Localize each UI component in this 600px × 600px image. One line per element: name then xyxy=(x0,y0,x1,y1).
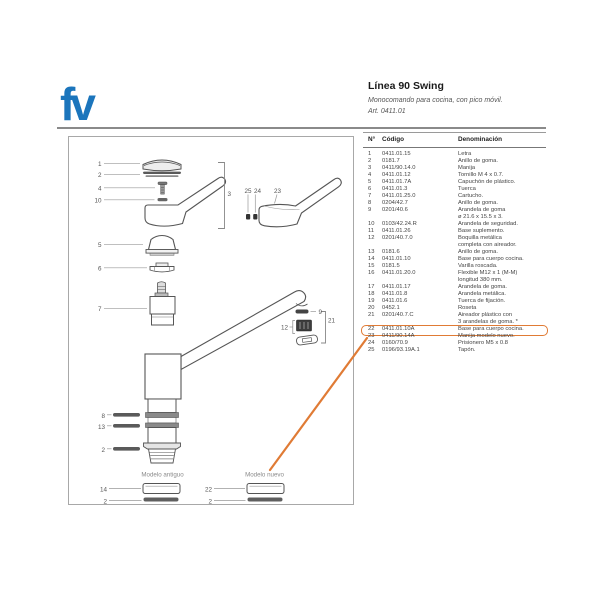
row-code: 0103/42.24.R xyxy=(382,221,458,228)
row-name: Tapón. xyxy=(458,347,546,354)
row-code: 0201/40.7.C xyxy=(382,312,458,326)
row-name: Prisionero M5 x 0.8 xyxy=(458,340,546,347)
row-name: Varilla roscada. xyxy=(458,263,546,270)
callout-7: 7 xyxy=(98,306,102,313)
table-row: 170411.01.17Arandela de goma. xyxy=(368,284,546,291)
part-base-old xyxy=(143,484,180,502)
part-aerator-body xyxy=(297,320,312,331)
row-number: 23 xyxy=(368,333,382,340)
row-code: 0452.1 xyxy=(382,305,458,312)
row-code: 0411.01.7A xyxy=(382,179,458,186)
page-subtitle: Monocomando para cocina, con pico móvil. xyxy=(368,97,503,104)
row-number: 22 xyxy=(368,326,382,333)
table-row: 140411.01.10Base para cuerpo cocina. xyxy=(368,256,546,263)
callout-5: 5 xyxy=(98,242,102,249)
row-number: 25 xyxy=(368,347,382,354)
row-name: Arandela de seguridad. xyxy=(458,221,546,228)
row-number: 16 xyxy=(368,270,382,284)
callout-3: 3 xyxy=(228,191,232,198)
callout-2d: 2 xyxy=(208,498,212,505)
table-row: 250196/93.19A.1Tapón. xyxy=(368,347,546,354)
row-code: 0411.01.15 xyxy=(382,151,458,158)
parts-sheet-page: fv Línea 90 Swing Monocomando para cocin… xyxy=(0,0,600,600)
table-row: 20181.7Anillo de goma. xyxy=(368,158,546,165)
part-handle-new xyxy=(259,178,341,227)
callout-10: 10 xyxy=(94,197,102,204)
part-screw xyxy=(158,182,167,194)
table-row: 110411.01.26Base suplemento. xyxy=(368,228,546,235)
row-number: 6 xyxy=(368,186,382,193)
fv-logo: fv xyxy=(60,82,112,128)
part-aerator-plate xyxy=(296,335,318,346)
row-name: Tornillo M 4 x 0.7. xyxy=(458,172,546,179)
table-row: 50411.01.7ACapuchón de plástico. xyxy=(368,179,546,186)
parts-table: 10411.01.15Letra20181.7Anillo de goma.30… xyxy=(368,151,546,354)
table-row: 90201/40.6Arandela de goma ø 21.6 x 15.5… xyxy=(368,207,546,221)
part-lower-body xyxy=(144,399,181,463)
part-cartridge xyxy=(150,282,175,325)
row-name: Roseta xyxy=(458,305,546,312)
part-aerator-ring xyxy=(296,310,309,314)
table-row: 100103/42.24.RArandela de seguridad. xyxy=(368,221,546,228)
callout-21: 21 xyxy=(328,318,336,325)
callout-2c: 2 xyxy=(103,498,107,505)
table-row: 130181.6Anillo de goma. xyxy=(368,249,546,256)
row-name: Letra xyxy=(458,151,546,158)
row-code: 0201/40.6 xyxy=(382,207,458,221)
row-name: Anillo de goma. xyxy=(458,200,546,207)
row-name: Anillo de goma. xyxy=(458,158,546,165)
row-code: 0411.01.26 xyxy=(382,228,458,235)
header-divider-line xyxy=(57,127,546,129)
part-base-new xyxy=(247,484,284,502)
callout-13: 13 xyxy=(98,424,106,431)
row-name: Capuchón de plástico. xyxy=(458,179,546,186)
part-dome-cap xyxy=(146,236,178,256)
row-name: Base suplemento. xyxy=(458,228,546,235)
callout-1: 1 xyxy=(98,161,102,168)
bracket-group-3 xyxy=(218,163,225,229)
row-code: 0411.01.25.0 xyxy=(382,193,458,200)
row-number: 11 xyxy=(368,228,382,235)
row-number: 1 xyxy=(368,151,382,158)
callout-9: 9 xyxy=(319,309,323,316)
row-name: Manija modelo nuevo. xyxy=(458,333,546,340)
row-code: 0411.01.17 xyxy=(382,284,458,291)
row-number: 20 xyxy=(368,305,382,312)
page-title: Línea 90 Swing xyxy=(368,80,444,92)
row-name: Tuerca xyxy=(458,186,546,193)
row-code: 0411.01.10 xyxy=(382,256,458,263)
callout-14: 14 xyxy=(100,486,108,493)
table-row: 120201/40.7.0Boquilla metálica completa … xyxy=(368,235,546,249)
row-number: 17 xyxy=(368,284,382,291)
callout-6: 6 xyxy=(98,265,102,272)
row-code: 0411.01.6 xyxy=(382,298,458,305)
row-number: 4 xyxy=(368,172,382,179)
col-header-name: Denominación xyxy=(458,136,546,143)
row-number: 14 xyxy=(368,256,382,263)
col-header-code: Código xyxy=(382,136,458,143)
row-number: 5 xyxy=(368,179,382,186)
callout-4: 4 xyxy=(98,185,102,192)
row-code: 0201/40.7.0 xyxy=(382,235,458,249)
row-code: 0411.01.12 xyxy=(382,172,458,179)
row-name: Flexible M12 x 1 (M-M) longitud 380 mm. xyxy=(458,270,546,284)
callout-22: 22 xyxy=(205,486,213,493)
table-header: N° Código Denominación xyxy=(368,136,546,143)
article-number: Art. 0411.01 xyxy=(368,108,406,115)
bracket-group-12 xyxy=(293,321,295,334)
row-code: 0411.01.3 xyxy=(382,186,458,193)
model-new-label: Modelo nuevo xyxy=(245,472,284,479)
row-code: 0181.5 xyxy=(382,263,458,270)
callout-23: 23 xyxy=(274,188,282,195)
part-oring-2 xyxy=(113,447,140,451)
part-nut xyxy=(150,263,174,272)
table-row: 80204/42.7Anillo de goma. xyxy=(368,200,546,207)
row-code: 0411/90.14.0 xyxy=(382,165,458,172)
table-top-line xyxy=(363,132,546,133)
table-row: 180411.01.8Arandela metálica. xyxy=(368,291,546,298)
row-number: 9 xyxy=(368,207,382,221)
row-number: 18 xyxy=(368,291,382,298)
part-cap xyxy=(143,160,181,171)
row-name: Aireador plástico con 3 arandelas de gom… xyxy=(458,312,546,326)
table-row: 230411/90.14AManija modelo nuevo. xyxy=(368,333,546,340)
row-name: Manija xyxy=(458,165,546,172)
row-number: 7 xyxy=(368,193,382,200)
callout-2b: 2 xyxy=(101,447,105,454)
row-number: 8 xyxy=(368,200,382,207)
table-row: 40411.01.12Tornillo M 4 x 0.7. xyxy=(368,172,546,179)
part-handle-old xyxy=(145,177,226,226)
table-row: 200452.1Roseta xyxy=(368,305,546,312)
row-name: Arandela de goma. xyxy=(458,284,546,291)
table-row: 160411.01.20.0Flexible M12 x 1 (M-M) lon… xyxy=(368,270,546,284)
row-code: 0181.6 xyxy=(382,249,458,256)
callout-12: 12 xyxy=(281,325,289,332)
part-setscrew-24 xyxy=(253,214,257,220)
row-number: 24 xyxy=(368,340,382,347)
part-oring-13 xyxy=(113,424,140,428)
callout-25: 25 xyxy=(244,188,252,195)
col-header-n: N° xyxy=(368,136,382,143)
row-name: Anillo de goma. xyxy=(458,249,546,256)
fv-logo-text: fv xyxy=(60,82,96,128)
callout-2: 2 xyxy=(98,172,102,179)
table-row: 240160/70.9Prisionero M5 x 0.8 xyxy=(368,340,546,347)
row-code: 0411.01.10A xyxy=(382,326,458,333)
row-number: 21 xyxy=(368,312,382,326)
row-code: 0160/70.9 xyxy=(382,340,458,347)
table-row: 210201/40.7.CAireador plástico con 3 ara… xyxy=(368,312,546,326)
row-number: 13 xyxy=(368,249,382,256)
row-name: Tuerca de fijación. xyxy=(458,298,546,305)
row-code: 0411.01.8 xyxy=(382,291,458,298)
row-code: 0181.7 xyxy=(382,158,458,165)
part-ring-top xyxy=(143,172,181,177)
row-code: 0411/90.14A xyxy=(382,333,458,340)
row-name: Base para cuerpo cocina. xyxy=(458,256,546,263)
row-code: 0411.01.20.0 xyxy=(382,270,458,284)
row-name: Arandela de goma ø 21.6 x 15.5 x 3. xyxy=(458,207,546,221)
row-number: 12 xyxy=(368,235,382,249)
exploded-diagram: 1 2 4 10 3 25 24 23 5 6 7 9 12 21 8 13 2… xyxy=(68,136,355,505)
table-row: 190411.01.6Tuerca de fijación. xyxy=(368,298,546,305)
callout-8: 8 xyxy=(101,413,105,420)
callout-24: 24 xyxy=(254,188,262,195)
model-old-label: Modelo antiguo xyxy=(141,472,184,479)
bracket-group-21 xyxy=(321,312,326,344)
table-row: 30411/90.14.0Manija xyxy=(368,165,546,172)
row-number: 3 xyxy=(368,165,382,172)
table-row: 70411.01.25.0Cartucho. xyxy=(368,193,546,200)
part-setscrew-25 xyxy=(246,214,250,220)
row-name: Base para cuerpo cocina. xyxy=(458,326,546,333)
row-name: Boquilla metálica completa con aireador. xyxy=(458,235,546,249)
row-number: 10 xyxy=(368,221,382,228)
row-name: Arandela metálica. xyxy=(458,291,546,298)
row-name: Cartucho. xyxy=(458,193,546,200)
table-row: 10411.01.15Letra xyxy=(368,151,546,158)
table-row-highlighted: 220411.01.10ABase para cuerpo cocina. xyxy=(368,326,546,333)
table-row: 60411.01.3Tuerca xyxy=(368,186,546,193)
part-oring-8 xyxy=(113,413,140,417)
row-number: 19 xyxy=(368,298,382,305)
table-header-underline xyxy=(363,147,546,148)
row-number: 15 xyxy=(368,263,382,270)
table-row: 150181.5Varilla roscada. xyxy=(368,263,546,270)
row-code: 0204/42.7 xyxy=(382,200,458,207)
row-number: 2 xyxy=(368,158,382,165)
part-small-ring xyxy=(158,198,168,201)
row-code: 0196/93.19A.1 xyxy=(382,347,458,354)
